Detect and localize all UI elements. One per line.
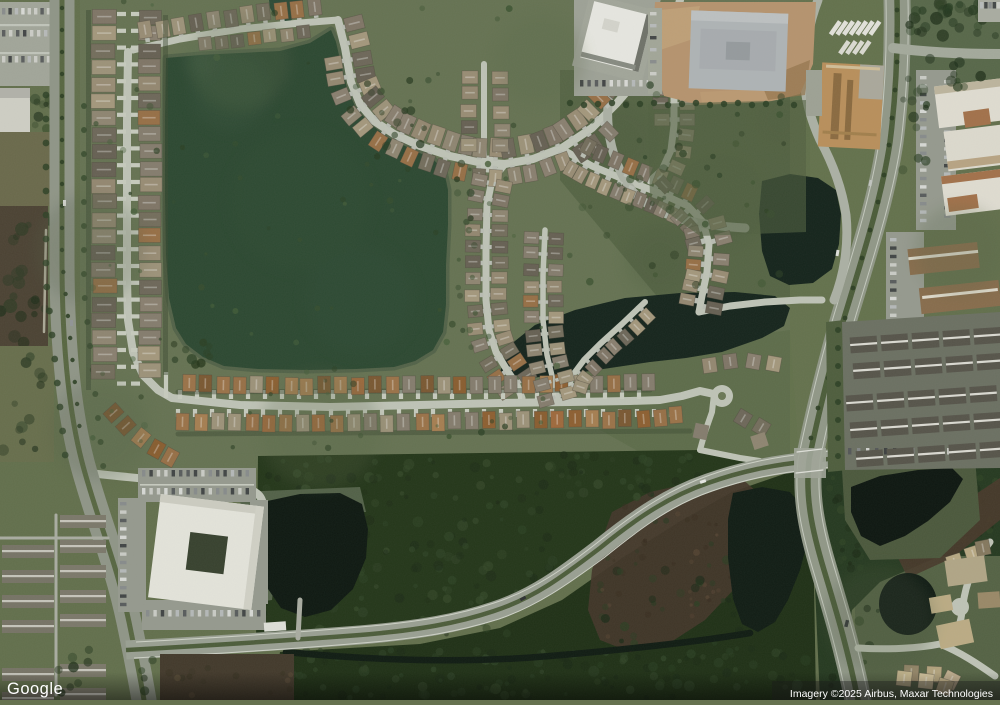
- svg-text:Imagery ©2025 Airbus, Maxar Te: Imagery ©2025 Airbus, Maxar Technologies: [790, 688, 993, 700]
- svg-text:Google: Google: [7, 680, 63, 698]
